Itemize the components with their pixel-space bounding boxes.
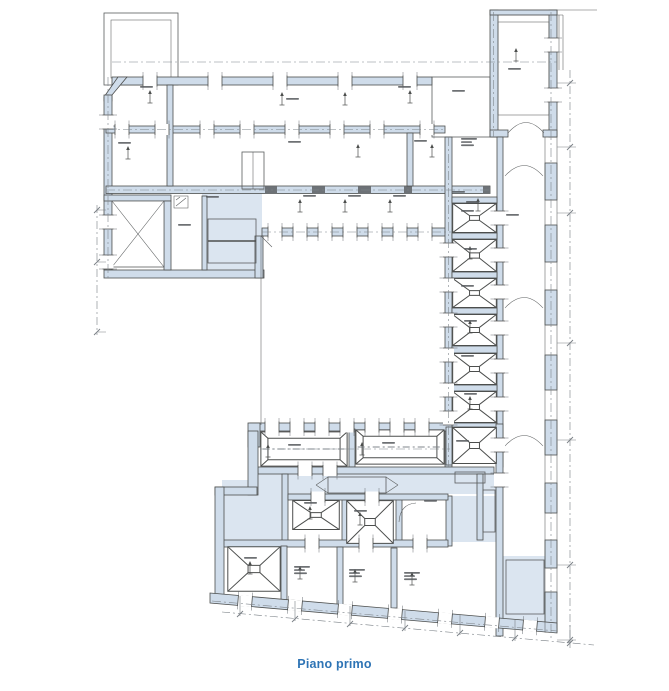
light-well	[112, 201, 164, 267]
floor-plan-svg	[0, 0, 669, 650]
vaulted-hall	[356, 430, 444, 464]
page: { "caption": { "text": "Piano primo" }, …	[0, 0, 669, 691]
floor-plan-drawing	[0, 0, 669, 650]
paper-background	[0, 0, 669, 650]
caption: Piano primo	[0, 657, 669, 671]
